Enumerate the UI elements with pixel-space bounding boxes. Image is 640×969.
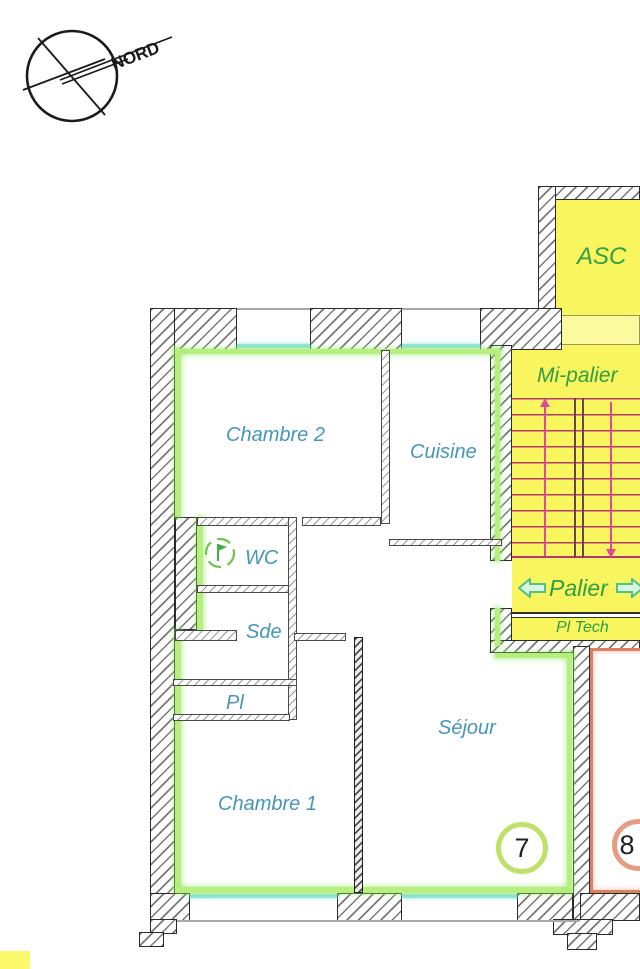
wall-step-right-2	[567, 933, 597, 950]
partition-hall-top	[294, 633, 346, 641]
label-chambre2: Chambre 2	[226, 424, 325, 447]
compass-rose: NORD	[8, 8, 188, 138]
wall-bottom-1	[150, 893, 190, 921]
north-label: NORD	[109, 38, 163, 74]
window-chambre2	[237, 344, 310, 348]
partition-sde-jog	[175, 630, 237, 641]
lot7-badge: 7	[496, 822, 548, 874]
wall-stairwell-upper	[490, 345, 512, 561]
stair-up-run	[544, 404, 546, 556]
facade-line-bottom	[177, 920, 580, 922]
label-chambre1: Chambre 1	[218, 793, 317, 816]
lot8-number: 8	[619, 830, 634, 861]
wall-left	[150, 308, 175, 920]
lot7-number: 7	[514, 833, 529, 864]
staircase	[512, 398, 640, 558]
wall-stairwell-lower	[490, 608, 512, 642]
partition-chambre2-wc	[197, 517, 290, 526]
window-sejour	[402, 894, 517, 898]
partition-wc-sde	[197, 585, 289, 593]
label-wc: WC	[245, 547, 278, 570]
apt7-outline-right-upper	[495, 349, 500, 561]
apt7-outline-left-wc	[197, 517, 203, 630]
apt7-outline-left-lower	[175, 630, 181, 888]
label-asc: ASC	[577, 243, 626, 271]
partition-chambre1-sejour	[354, 637, 363, 893]
wall-bottom-2	[337, 893, 402, 921]
wall-top-3	[480, 308, 562, 350]
wall-asc-left	[538, 186, 556, 316]
wall-step-left-2	[139, 932, 164, 947]
apt7-outline-top	[175, 349, 500, 354]
apt7-outline-left-upper	[175, 349, 181, 517]
window-cuisine	[402, 344, 480, 348]
apt7-outline-right-mid	[495, 608, 500, 646]
partition-cuisine-bottom-entry	[389, 539, 502, 546]
label-mi-palier: Mi-palier	[537, 364, 618, 388]
label-pl-tech: Pl Tech	[556, 619, 609, 637]
apt7-outline-jog	[495, 653, 573, 658]
wall-top-2	[310, 308, 402, 350]
elevator-door-zone	[556, 315, 640, 345]
label-palier: Palier	[549, 575, 608, 602]
stair-down-run	[610, 402, 612, 550]
partition-pl-top	[173, 679, 297, 686]
stair-down-arrow-icon	[606, 549, 616, 558]
palier-left-arrow-icon	[518, 578, 546, 598]
apt7-outline-bottom	[175, 887, 572, 893]
floor-plan: NORD	[0, 0, 640, 969]
palier-right-arrow-icon	[616, 578, 640, 598]
partition-hall-vertical	[288, 517, 297, 720]
label-pl: Pl	[226, 692, 244, 715]
window-chambre1	[190, 894, 337, 898]
label-sde: Sde	[246, 621, 282, 644]
partition-pl-bottom	[173, 714, 290, 721]
stair-divider	[574, 398, 576, 558]
stair-up-arrow-icon	[540, 398, 550, 407]
wall-between-apartments	[573, 646, 590, 921]
wall-bottom-3	[517, 893, 573, 921]
partition-chambre2-cuisine	[381, 350, 390, 524]
wall-pier-wc	[175, 517, 197, 630]
wc-vent-icon	[203, 536, 237, 570]
label-sejour: Séjour	[438, 717, 496, 740]
apt7-outline-right-lower	[567, 653, 572, 889]
label-cuisine: Cuisine	[410, 441, 477, 464]
yellow-fragment	[0, 951, 30, 969]
wall-bottom-4	[580, 893, 640, 921]
partition-chambre2-hall	[302, 517, 381, 526]
